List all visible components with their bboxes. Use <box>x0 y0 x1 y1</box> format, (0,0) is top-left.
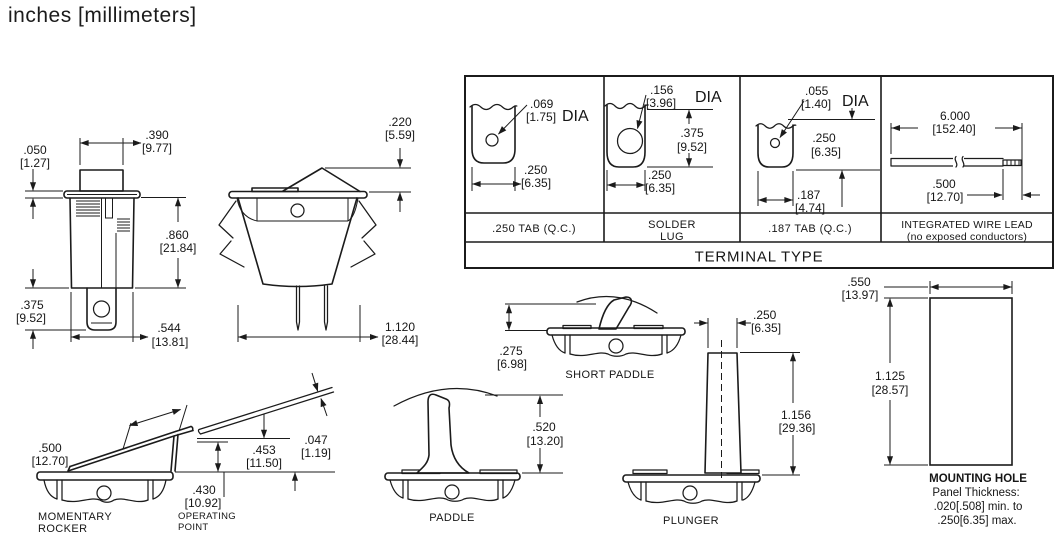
terminal-tab250-cell: .069 [1.75] DIA .250 [6.35] .250 TAB (Q.… <box>470 97 589 235</box>
tab187-h-mm: [6.35] <box>811 145 841 159</box>
tab187-label: .187 TAB (Q.C.) <box>768 223 852 235</box>
dim-1156-mm: [29.36] <box>779 421 816 435</box>
short-paddle-body-hole <box>609 339 623 353</box>
terminal-type-title: TERMINAL TYPE <box>695 249 824 266</box>
tab187-w-in: .187 <box>797 188 821 202</box>
solder-lug-outline <box>607 105 645 167</box>
plunger-body-hole <box>683 486 697 500</box>
tab250-label: .250 TAB (Q.C.) <box>492 223 576 235</box>
paddle-body-sides <box>390 480 515 498</box>
dim-390-mm: [9.77] <box>142 141 172 155</box>
dim-047-arrow-bottom <box>321 399 327 416</box>
mounting-hole-rect <box>930 298 1012 465</box>
dim-1120-in: 1.120 <box>385 320 415 334</box>
wire-lead-len-mm: [152.40] <box>932 122 975 136</box>
wire-lead-strip-mm: [12.70] <box>927 190 964 204</box>
dim-050-in: .050 <box>23 143 47 157</box>
side-view-pivot-hole <box>291 204 304 217</box>
plunger-body-sides <box>628 482 755 500</box>
momentary-lever <box>68 427 193 472</box>
dim-520-mm: [13.20] <box>527 434 564 448</box>
wire-lead-strip-in: .500 <box>932 177 956 191</box>
solder-lug-w-ext <box>607 170 645 191</box>
wire-lead-stripped-tip <box>1003 160 1021 166</box>
dim-544-mm: [13.81] <box>152 335 189 349</box>
tab250-width-ext <box>472 167 515 191</box>
solder-lug-label-line1: SOLDER <box>648 219 696 231</box>
short-paddle-label: SHORT PADDLE <box>565 369 654 381</box>
side-view-wing-left <box>219 201 244 267</box>
dim-500-in: .500 <box>38 441 62 455</box>
tab187-break-edge <box>756 124 796 129</box>
terminal-solder-lug-cell: .156 [3.96] DIA .375 [9.52] .250 [6.35] … <box>605 83 722 243</box>
dim-500-mm: [12.70] <box>32 454 69 468</box>
dim-1156-in: 1.156 <box>781 408 811 422</box>
tab250-dia-suffix: DIA <box>562 108 589 125</box>
dim-550-mm: [13.97] <box>842 288 879 302</box>
solder-lug-break-edge <box>605 104 648 109</box>
dim-550-in: .550 <box>847 275 871 289</box>
plunger-actuator <box>705 353 741 473</box>
momentary-rocker-figure: .500 [12.70] .430 [10.92] OPERATING POIN… <box>32 373 335 535</box>
dim-275-in: .275 <box>499 344 523 358</box>
tab250-hole <box>486 134 498 146</box>
tab187-hole <box>771 139 780 148</box>
momentary-body-hole <box>97 486 111 500</box>
momentary-rocker-label-line1: MOMENTARY <box>38 511 112 523</box>
tab187-outline <box>758 125 793 167</box>
side-view-terminal-pins <box>297 286 328 330</box>
dim-250-ext <box>708 318 737 348</box>
tab250-dia-in: .069 <box>530 97 554 111</box>
paddle-figure: .520 [13.20] PADDLE <box>385 388 563 524</box>
front-view-ribs-right <box>117 219 130 231</box>
dim-500-line <box>130 410 181 426</box>
dim-047-arrow-top <box>312 373 318 391</box>
tab187-h-in: .250 <box>812 131 836 145</box>
dim-375-in: .375 <box>20 298 44 312</box>
front-view-slot <box>106 198 113 218</box>
dim-860-mm: [21.84] <box>160 241 197 255</box>
side-view-figure: .220 [5.59] 1.120 [28.44] <box>219 115 418 347</box>
tab187-w-ext <box>758 171 793 206</box>
tab187-dia-suffix: DIA <box>842 93 869 110</box>
dim-047-mm: [1.19] <box>301 446 331 460</box>
tab250-dia-mm: [1.75] <box>526 110 556 124</box>
tab187-dia-in: .055 <box>805 84 829 98</box>
solder-lug-dia-in: .156 <box>650 83 674 97</box>
dim-050-ext <box>25 191 63 198</box>
tab187-w-mm: [4.74] <box>795 201 825 215</box>
wire-lead-label-line2: (no exposed conductors) <box>907 231 1027 243</box>
solder-lug-label-line2: LUG <box>660 231 684 243</box>
dim-860-in: .860 <box>165 228 189 242</box>
paddle-body-hole <box>445 485 459 499</box>
short-paddle-body-ears <box>565 335 667 354</box>
tab250-leader <box>499 105 528 134</box>
operating-point-line2: POINT <box>178 522 209 533</box>
side-view-bezel <box>229 192 367 199</box>
operating-point-line1: OPERATING <box>178 511 236 522</box>
tab250-w-in: .250 <box>524 163 548 177</box>
side-view-panel <box>257 198 348 221</box>
momentary-lever-projection <box>198 388 333 435</box>
tab250-w-mm: [6.35] <box>521 176 551 190</box>
dim-275-ext <box>505 304 596 331</box>
plunger-bezel <box>623 475 760 482</box>
dim-544-in: .544 <box>157 321 181 335</box>
plunger-body-ears <box>641 482 742 501</box>
front-view-ribs-left <box>76 201 100 216</box>
dim-390-in: .390 <box>145 128 169 142</box>
plunger-pad-left <box>633 470 667 474</box>
paddle-label: PADDLE <box>429 512 475 524</box>
mounting-hole-figure: .550 [13.97] 1.125 [28.57] MOUNTING HOLE… <box>842 275 1028 527</box>
terminal-type-table: .069 [1.75] DIA .250 [6.35] .250 TAB (Q.… <box>465 76 1053 268</box>
short-paddle-actuator <box>599 297 631 329</box>
front-view-body-lines <box>102 198 117 288</box>
dim-1125-in: 1.125 <box>875 369 905 383</box>
dim-250-in: .250 <box>753 308 777 322</box>
dim-390-ext <box>80 138 123 165</box>
solder-lug-w-mm: [6.35] <box>645 181 675 195</box>
momentary-bezel <box>37 472 173 480</box>
dim-220-mm: [5.59] <box>385 128 415 142</box>
dim-220-ext <box>325 168 411 192</box>
paddle-actuator <box>417 394 469 473</box>
plunger-label: PLUNGER <box>663 515 719 527</box>
solder-lug-h-in: .375 <box>680 126 704 140</box>
mounting-hole-note-line2: .020[.508] min. to <box>934 501 1023 513</box>
dim-453-mm: [11.50] <box>246 456 282 470</box>
wire-lead-label-line1: INTEGRATED WIRE LEAD <box>901 219 1033 231</box>
dim-453-in: .453 <box>252 443 276 457</box>
front-view-figure: .050 [1.27] .390 [9.77] .860 [21.84] .37… <box>16 128 196 349</box>
momentary-rocker-label-line2: ROCKER <box>38 523 87 535</box>
dim-1120-mm: [28.44] <box>382 333 419 347</box>
front-view-terminal-hole <box>94 301 110 317</box>
dim-375-mm: [9.52] <box>16 311 46 325</box>
dim-220-in: .220 <box>388 115 412 129</box>
plunger-figure: .250 [6.35] 1.156 [29.36] PLUNGER <box>623 308 815 527</box>
momentary-body-ears <box>57 480 153 500</box>
drawing-canvas: .050 [1.27] .390 [9.77] .860 [21.84] .37… <box>0 0 1057 544</box>
solder-lug-dia-suffix: DIA <box>695 89 722 106</box>
wire-lead-insulation <box>891 159 1003 167</box>
paddle-body-ears <box>403 480 503 499</box>
wire-lead-tip-hatch <box>1007 160 1019 166</box>
mounting-hole-note-line1: Panel Thickness: <box>932 487 1019 499</box>
dim-047-in: .047 <box>304 433 328 447</box>
mounting-hole-note-line3: .250[6.35] max. <box>937 515 1016 527</box>
terminal-wire-lead-cell: 6.000 [152.40] .500 [12.70] INTEGRATED W… <box>891 109 1040 243</box>
side-view-body <box>238 198 357 287</box>
solder-lug-w-in: .250 <box>648 168 672 182</box>
front-view-button <box>80 170 123 191</box>
wire-lead-len-in: 6.000 <box>940 109 970 123</box>
dim-430-mm: [10.92] <box>185 496 222 510</box>
dim-050-mm: [1.27] <box>20 156 50 170</box>
solder-lug-h-mm: [9.52] <box>677 140 707 154</box>
short-paddle-figure: .275 [6.98] SHORT PADDLE <box>497 297 685 381</box>
front-view-terminal <box>87 288 116 330</box>
solder-lug-dia-mm: [3.96] <box>646 96 676 110</box>
dim-250-mm: [6.35] <box>751 321 781 335</box>
dim-275-mm: [6.98] <box>497 357 527 371</box>
mounting-hole-label: MOUNTING HOLE <box>929 473 1027 485</box>
tab250-break-edge <box>470 105 517 110</box>
dim-430-in: .430 <box>192 483 216 497</box>
dim-1125-mm: [28.57] <box>872 383 909 397</box>
dim-520-in: .520 <box>532 420 556 434</box>
tab187-dia-mm: [1.40] <box>801 97 831 111</box>
solder-lug-hole <box>618 129 643 154</box>
drawing-sheet: inches [millimeters] .050 [1.27] <box>0 0 1057 544</box>
